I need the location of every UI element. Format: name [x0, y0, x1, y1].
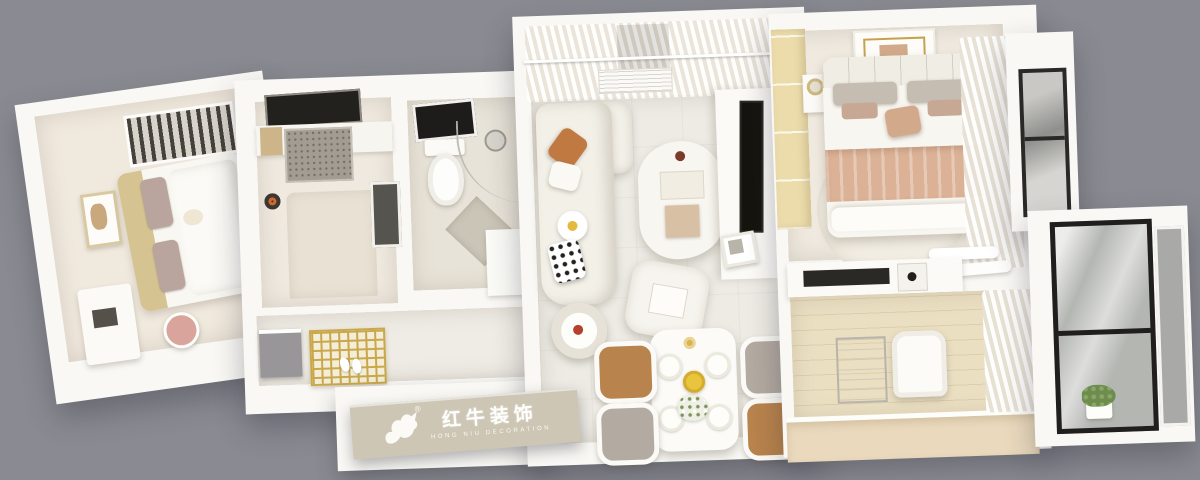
- blob-coffee-table: [637, 140, 725, 261]
- flower-bouquet: [677, 394, 708, 421]
- ottoman-tray: [648, 283, 689, 319]
- photo-frame: [720, 230, 759, 267]
- coffee-cup: [675, 151, 685, 161]
- cutting-board: [260, 127, 283, 156]
- toilet-bowl: [427, 153, 465, 206]
- tan-pillow: [841, 102, 878, 119]
- air-conditioner: [598, 67, 673, 94]
- bedroom-desk: [77, 283, 141, 366]
- table-book: [665, 205, 700, 238]
- apartment-plan: ® 红牛装饰 HONG NIU DECORATION: [0, 0, 1200, 480]
- balcony-bay-bottom: [1027, 205, 1195, 446]
- photo: [728, 239, 744, 255]
- frame-art: [89, 203, 108, 231]
- duvet-fold: [831, 203, 982, 232]
- study-desk: [786, 409, 1039, 463]
- kitchen-bath-block: [234, 70, 557, 415]
- bathroom-floor: [407, 97, 532, 291]
- plate: [656, 353, 683, 380]
- registered-mark: ®: [414, 404, 421, 413]
- table-tray: [660, 170, 705, 200]
- bull-icon: ®: [379, 408, 422, 449]
- window-mullion: [1025, 136, 1065, 141]
- brand-text: 红牛装饰 HONG NIU DECORATION: [429, 403, 551, 440]
- window-mullion: [1058, 328, 1150, 336]
- daisy-center: [567, 221, 577, 231]
- speaker-dot: [907, 272, 916, 281]
- dining-chair-gray: [596, 402, 660, 466]
- nightstand-lamp: [806, 78, 824, 96]
- office-chair: [891, 330, 947, 398]
- pink-chair: [161, 310, 202, 351]
- render-canvas: ® 红牛装饰 HONG NIU DECORATION: [0, 0, 1200, 480]
- window-bay-top: [1005, 31, 1080, 231]
- picture-frame: [80, 190, 123, 248]
- wood-wardrobe: [771, 29, 812, 230]
- fridge: [370, 181, 402, 248]
- black-device: [803, 268, 890, 287]
- dining-chair-leather: [594, 340, 658, 404]
- bedroom-balcony-window: [1018, 68, 1071, 218]
- tan-pillow: [927, 99, 964, 116]
- entry-floor: [256, 306, 540, 386]
- side-glass-pane: [1154, 226, 1191, 427]
- kitchen-floor: [255, 97, 398, 308]
- gold-cup: [683, 337, 695, 349]
- terrazzo-worktop: [284, 127, 354, 183]
- wire-rack: [836, 336, 888, 404]
- tv: [742, 103, 762, 231]
- plate: [706, 404, 733, 431]
- speaker-box: [897, 263, 928, 292]
- plate: [704, 352, 731, 379]
- island-counter: [286, 190, 378, 299]
- laptop: [92, 307, 118, 328]
- rose-blanket: [825, 145, 985, 202]
- gold-lattice-screen: [309, 328, 387, 387]
- rose-throw-pillow: [884, 105, 922, 138]
- pot: [264, 193, 281, 210]
- gray-shoe-cabinet: [259, 328, 303, 377]
- yellow-fruit-bowl: [683, 370, 706, 393]
- dining-table: [649, 327, 739, 452]
